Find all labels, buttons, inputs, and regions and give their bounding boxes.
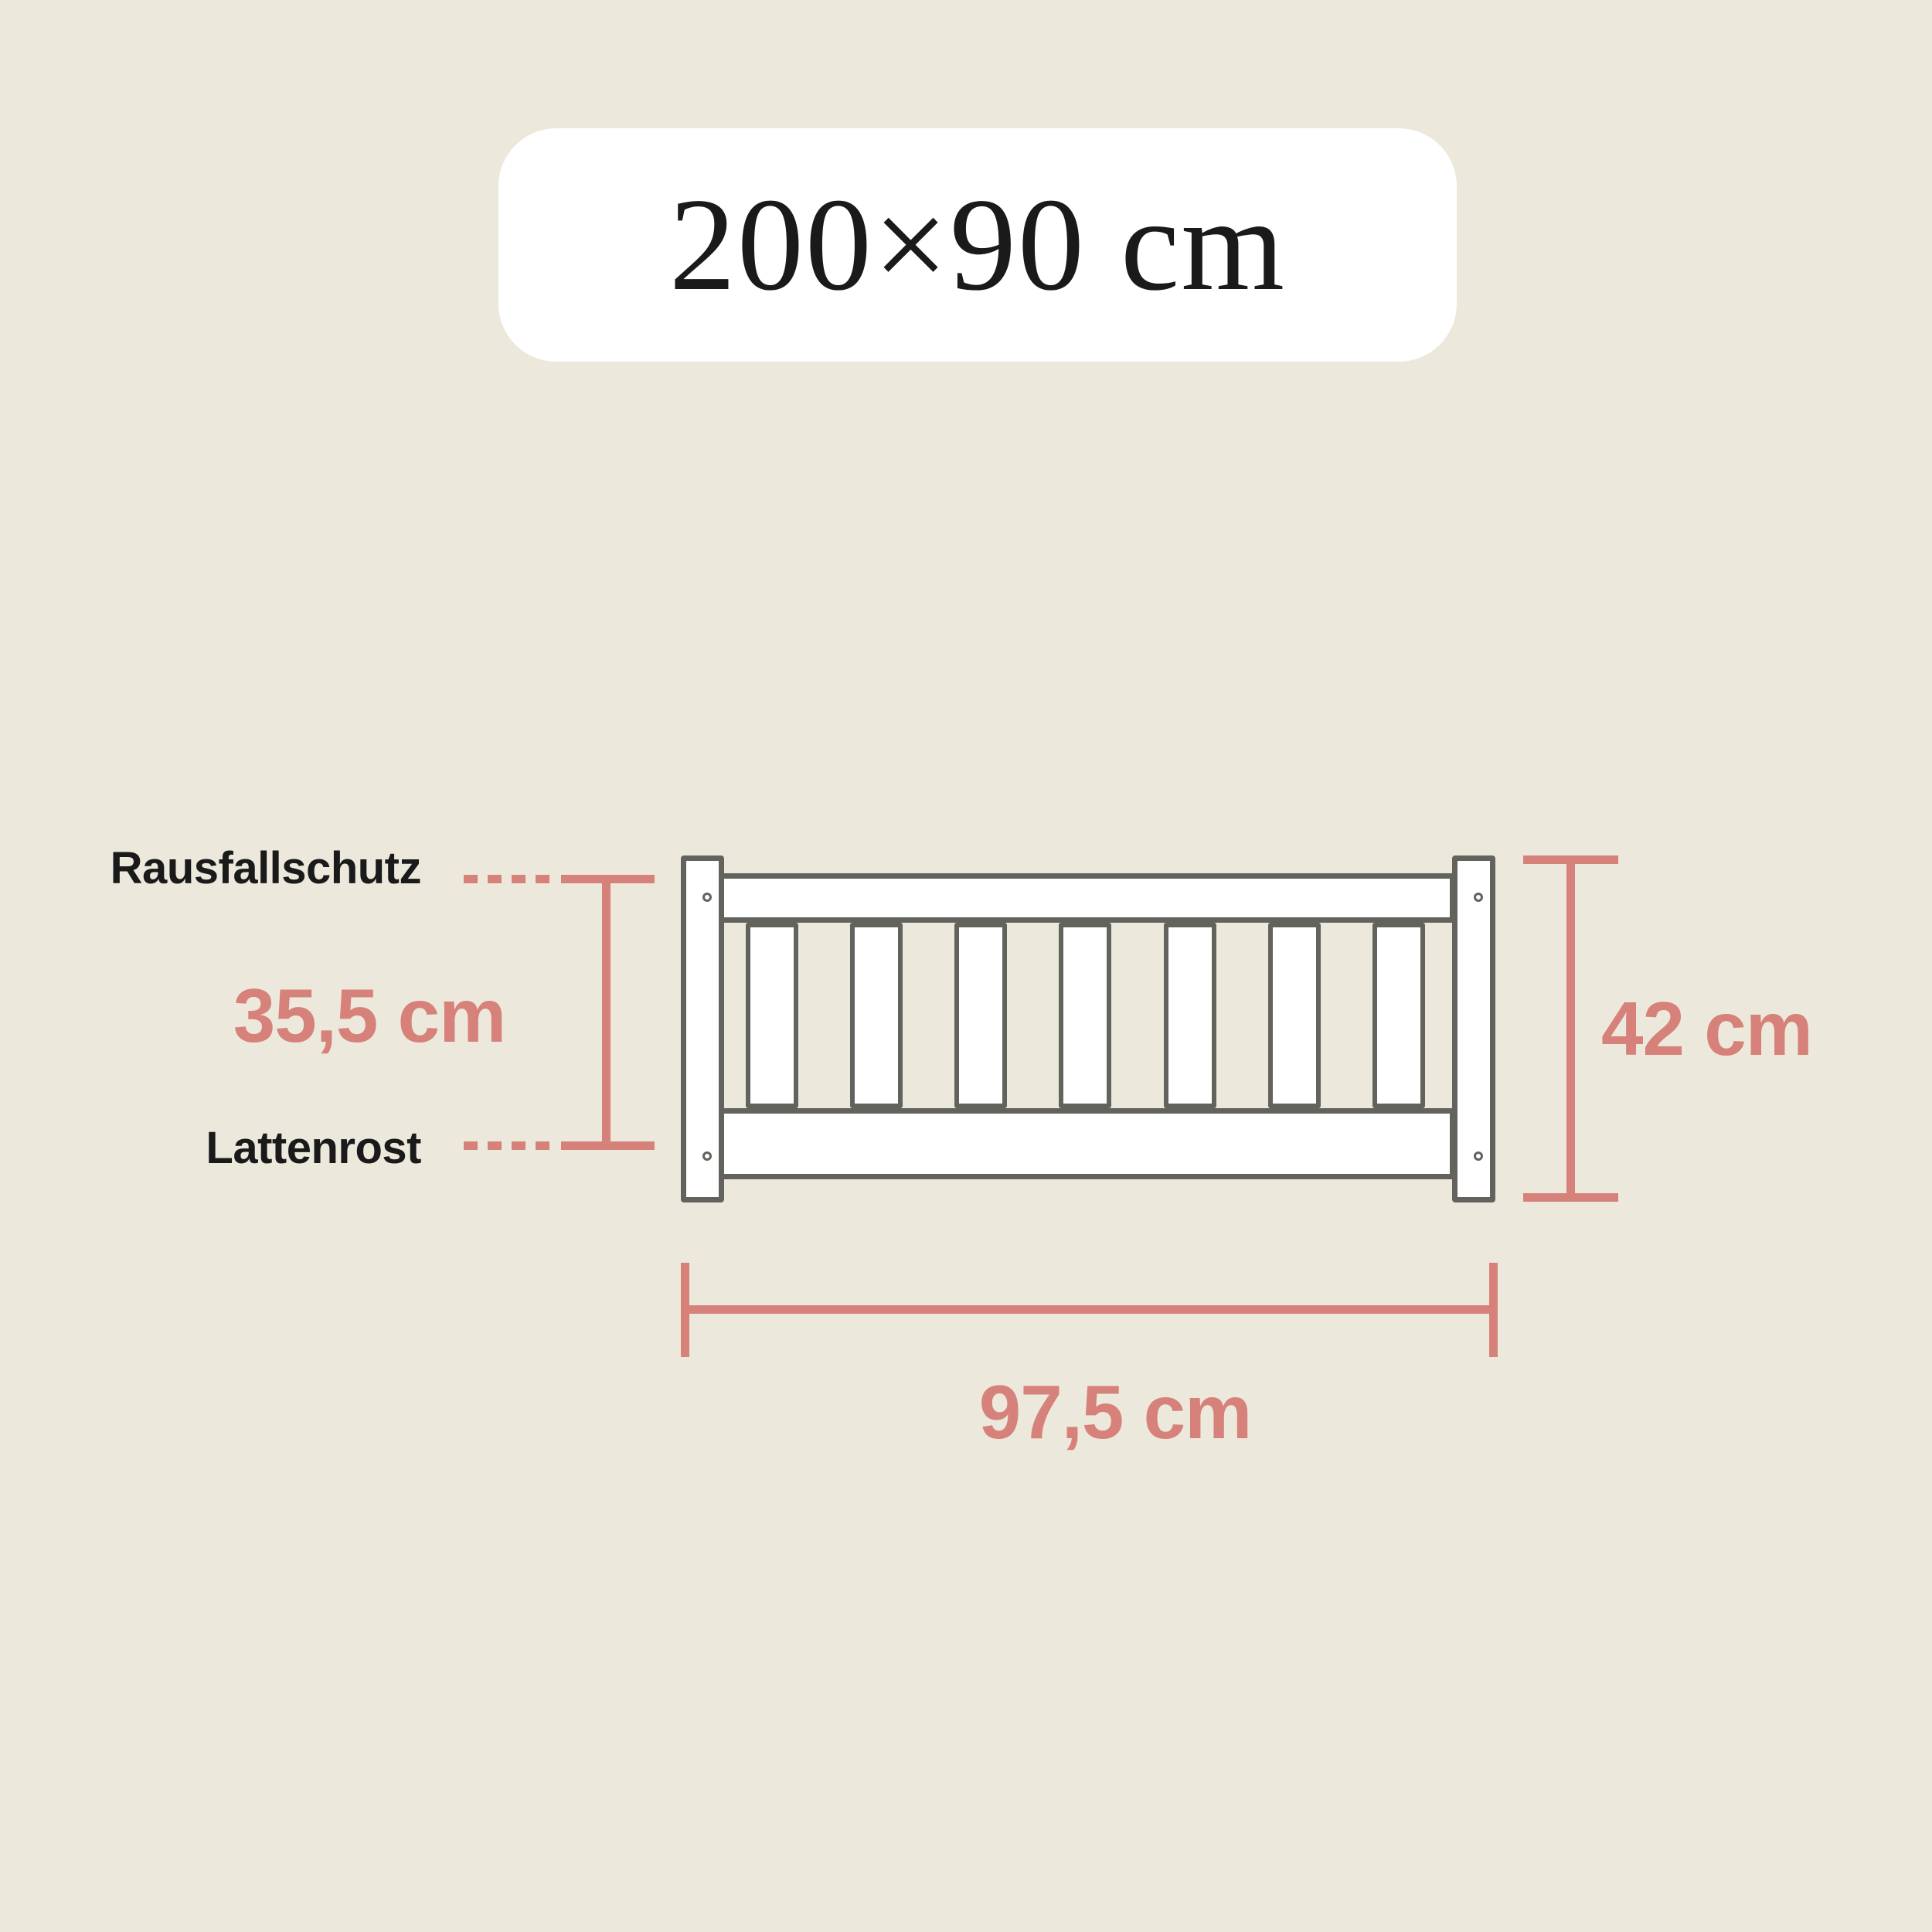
bed-slats	[746, 923, 1425, 1108]
label-lattenrost: Lattenrost	[206, 1126, 421, 1171]
bracket-cap-bottom	[561, 1141, 655, 1150]
bed-post-right	[1452, 855, 1495, 1202]
bed-slat	[1164, 923, 1216, 1108]
bed-dimensions-infographic: 200×90 cm Rausfallschutz Lattenrost 35,5…	[0, 0, 1932, 1932]
bed-bottom-rail	[719, 1108, 1455, 1179]
screw-hole	[1474, 893, 1483, 902]
size-badge-label: 200×90 cm	[669, 179, 1286, 311]
bed-slat	[954, 923, 1007, 1108]
bed-slat	[850, 923, 903, 1108]
screw-hole	[702, 1151, 712, 1161]
screw-hole	[702, 893, 712, 902]
dimension-tick-right	[1489, 1263, 1498, 1357]
size-badge: 200×90 cm	[498, 128, 1457, 362]
bed-post-left	[681, 855, 724, 1202]
measurement-rail-height: 35,5 cm	[233, 978, 506, 1053]
measurement-total-height: 42 cm	[1601, 991, 1812, 1066]
measurement-length: 97,5 cm	[979, 1374, 1252, 1450]
bed-slat	[746, 923, 798, 1108]
leader-dashes-rausfallschutz	[464, 875, 560, 883]
label-rausfallschutz: Rausfallschutz	[111, 846, 421, 891]
dimension-line-horizontal	[685, 1305, 1493, 1314]
bracket-line-vertical	[602, 875, 611, 1150]
bed-slat	[1268, 923, 1321, 1108]
screw-hole	[1474, 1151, 1483, 1161]
leader-dashes-lattenrost	[464, 1141, 560, 1150]
bracket-cap-bottom	[1523, 1193, 1618, 1202]
bed-slat	[1059, 923, 1111, 1108]
bracket-line-vertical	[1566, 859, 1575, 1198]
bed-top-rail	[719, 873, 1455, 923]
bed-slat	[1372, 923, 1425, 1108]
